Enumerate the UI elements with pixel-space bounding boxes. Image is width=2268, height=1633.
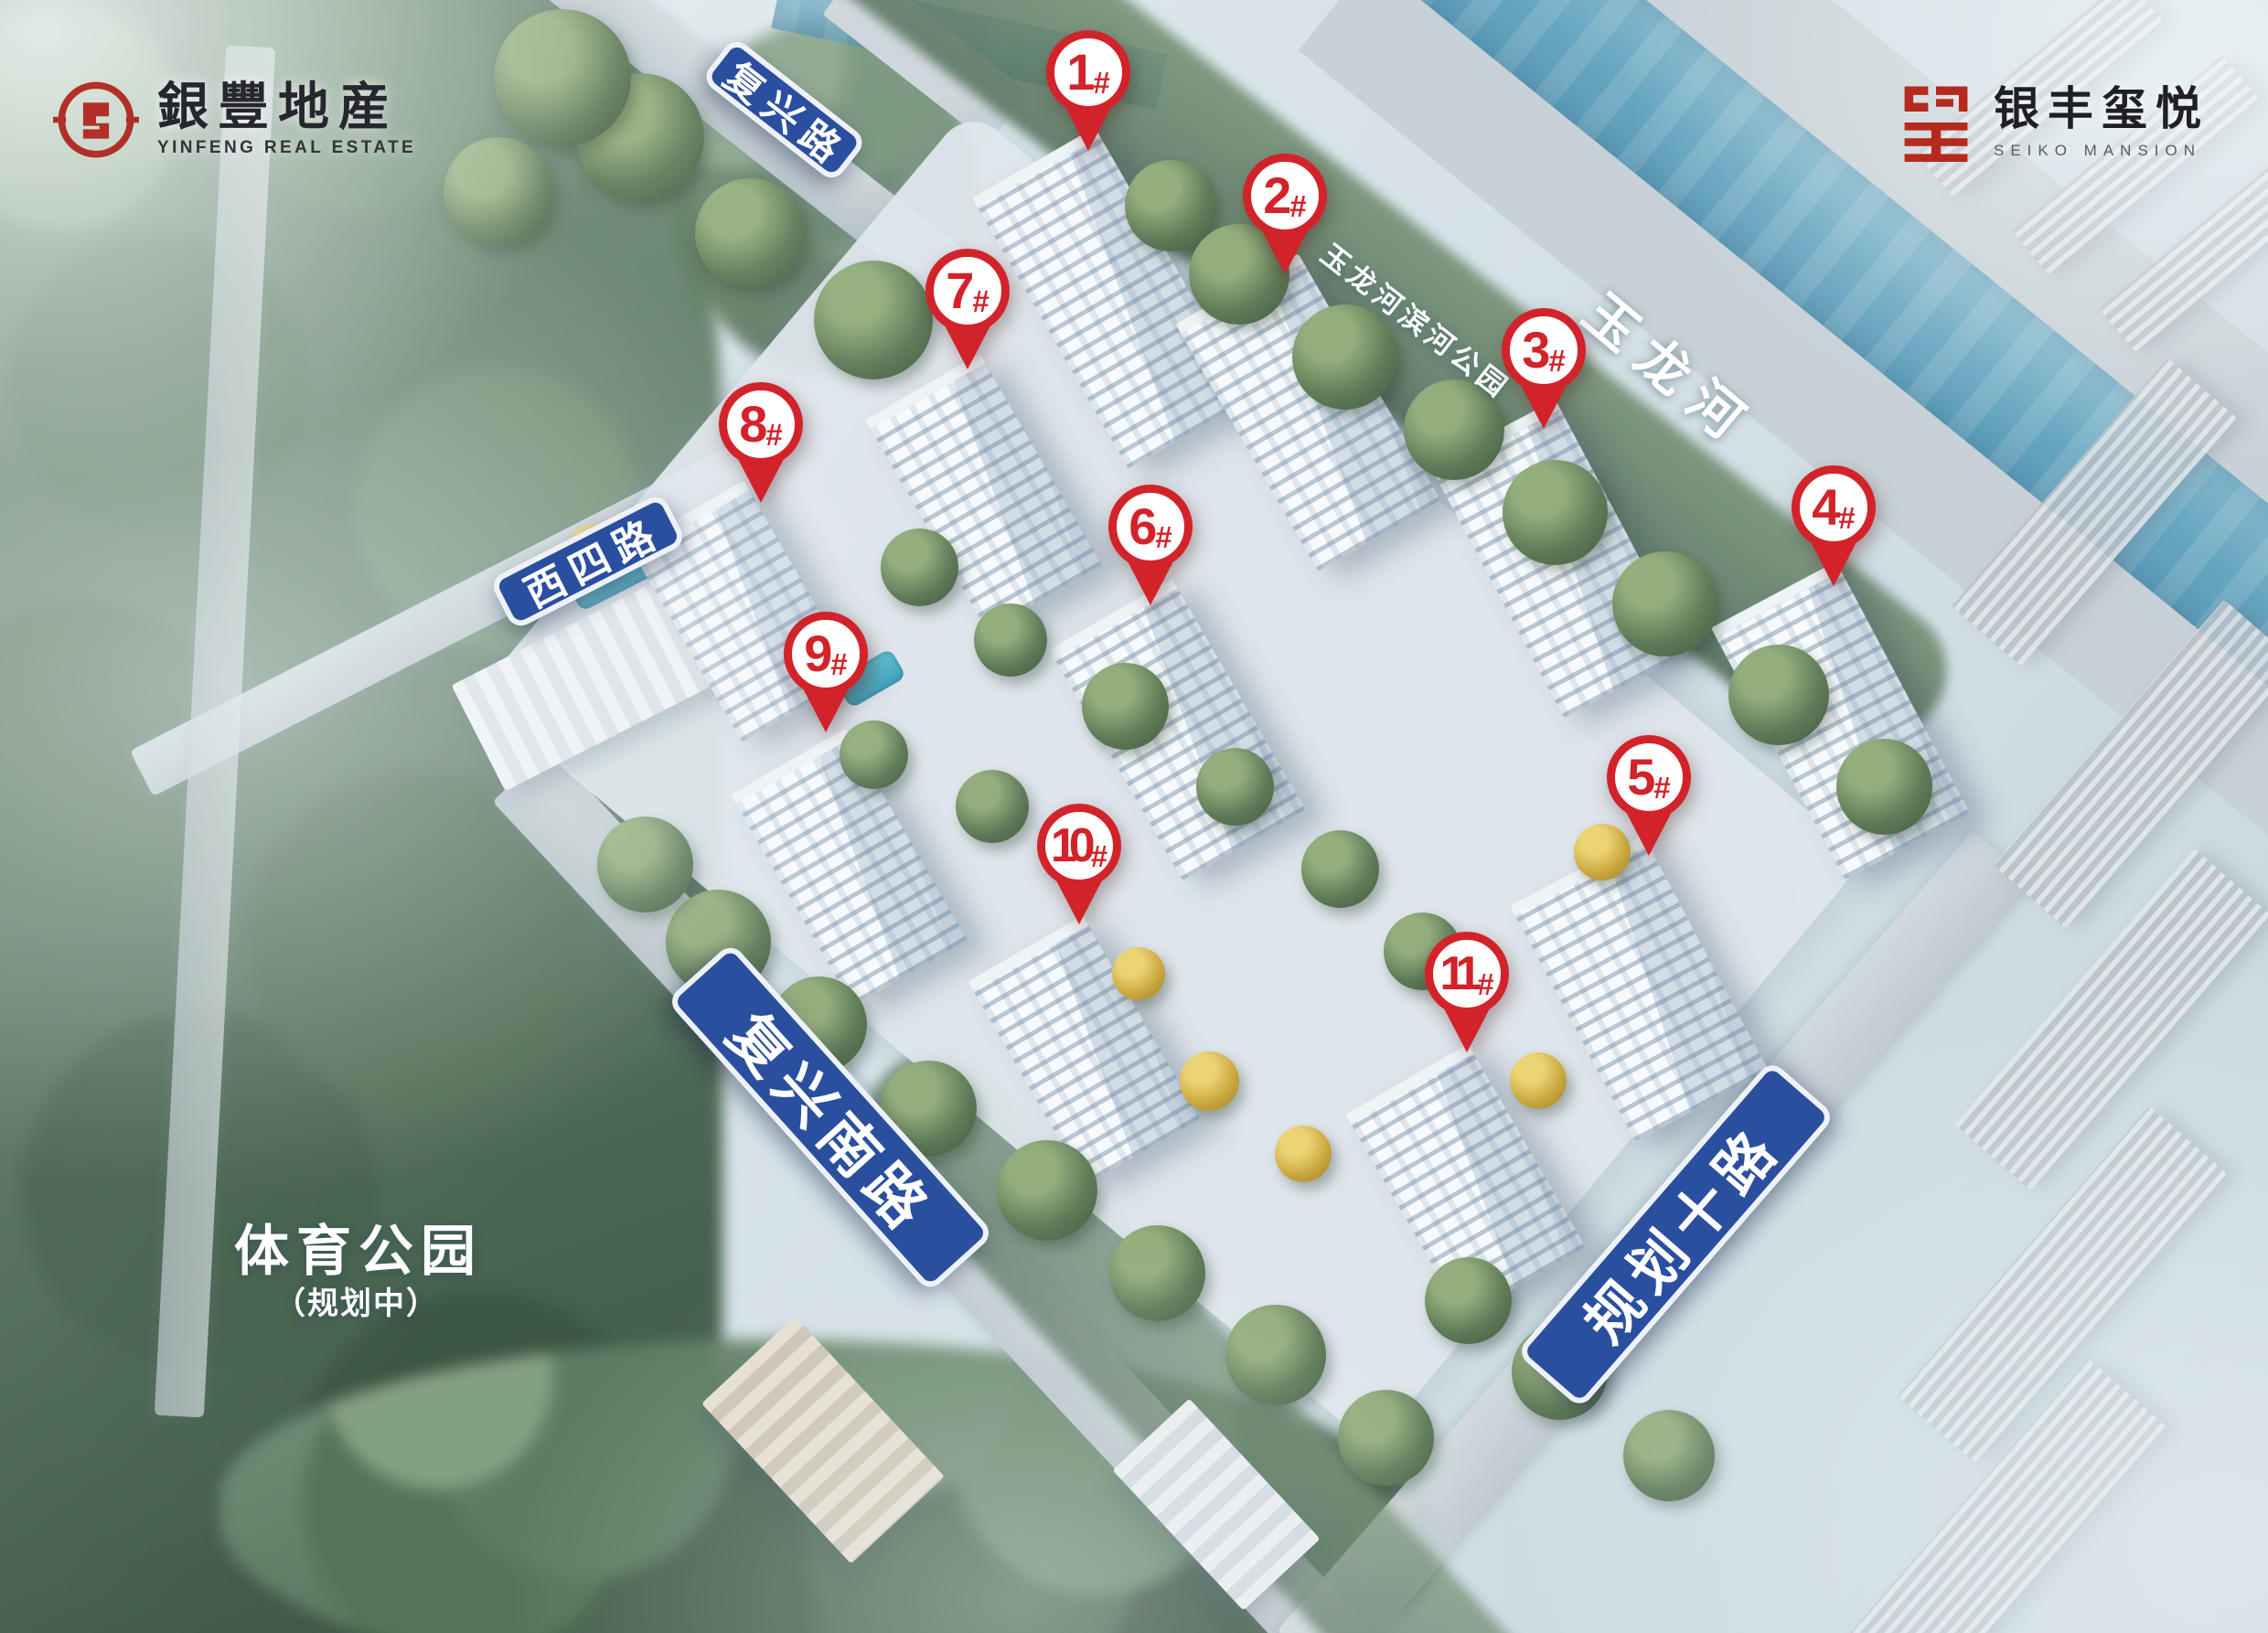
tree xyxy=(1112,947,1165,1000)
tree xyxy=(1836,739,1932,835)
marker-number: 5 xyxy=(1627,752,1653,803)
marker-number: 8 xyxy=(739,399,765,450)
tree xyxy=(814,261,933,379)
building-marker-1: 1# xyxy=(1046,30,1130,151)
scenery-layer xyxy=(0,0,2268,1633)
marker-bubble: 10# xyxy=(1037,804,1121,888)
developer-name-en: YINFENG REAL ESTATE xyxy=(157,138,416,158)
tree xyxy=(1275,1126,1332,1182)
marker-bubble: 6# xyxy=(1108,485,1193,569)
marker-hash: # xyxy=(1289,191,1306,221)
tree xyxy=(997,1140,1097,1241)
tree xyxy=(1109,1225,1205,1321)
tree xyxy=(494,9,631,146)
building-marker-6: 6# xyxy=(1108,485,1193,605)
project-name-cn: 银丰玺悦 xyxy=(1994,85,2209,133)
building-marker-10: 10# xyxy=(1037,804,1121,924)
tree xyxy=(956,770,1029,843)
tree xyxy=(695,178,805,288)
marker-hash: # xyxy=(1838,503,1855,533)
project-logo: 银丰玺悦 SEIKO MANSION xyxy=(1897,77,2209,168)
marker-hash: # xyxy=(1091,841,1107,871)
marker-hash: # xyxy=(765,420,782,450)
building-marker-5: 5# xyxy=(1607,735,1691,856)
project-name-en: SEIKO MANSION xyxy=(1994,142,2209,160)
marker-hash: # xyxy=(1653,773,1670,803)
marker-bubble: 11# xyxy=(1425,932,1509,1016)
marker-number: 3 xyxy=(1522,325,1548,376)
building-marker-2: 2# xyxy=(1243,154,1327,274)
tree xyxy=(974,603,1047,677)
tree xyxy=(1425,1257,1512,1344)
marker-bubble: 3# xyxy=(1502,308,1586,392)
building-marker-11: 11# xyxy=(1425,932,1509,1052)
marker-hash: # xyxy=(1477,969,1493,999)
marker-bubble: 5# xyxy=(1607,735,1691,819)
marker-number: 1 xyxy=(1066,47,1093,98)
marker-bubble: 7# xyxy=(925,249,1010,333)
tree xyxy=(1292,304,1397,410)
marker-number: 10 xyxy=(1051,822,1087,870)
building-marker-9: 9# xyxy=(784,612,868,732)
tree xyxy=(1225,1305,1326,1405)
marker-bubble: 4# xyxy=(1792,465,1876,550)
marker-number: 11 xyxy=(1439,950,1473,998)
marker-bubble: 2# xyxy=(1243,154,1327,238)
marker-hash: # xyxy=(1155,522,1171,552)
marker-hash: # xyxy=(972,286,989,316)
tree xyxy=(881,528,958,606)
building-marker-4: 4# xyxy=(1792,465,1876,586)
marker-number: 4 xyxy=(1812,482,1838,533)
tree xyxy=(1338,1390,1434,1486)
building-marker-7: 7# xyxy=(925,249,1010,369)
tree xyxy=(1503,460,1608,565)
tree xyxy=(1623,1410,1715,1501)
developer-name-cn: 銀豐地産 xyxy=(157,81,416,135)
marker-number: 2 xyxy=(1263,170,1289,221)
tree xyxy=(1125,160,1216,251)
marker-hash: # xyxy=(1548,346,1565,376)
marker-bubble: 1# xyxy=(1046,30,1130,114)
tree xyxy=(1180,1051,1239,1111)
developer-logo: 銀豐地産 YINFENG REAL ESTATE xyxy=(53,77,416,163)
sports-park-status-label: （规划中） xyxy=(274,1278,439,1323)
sports-park-label: 体育公园 xyxy=(234,1207,483,1286)
building-marker-3: 3# xyxy=(1502,308,1586,429)
tree xyxy=(1082,663,1169,750)
building-marker-8: 8# xyxy=(719,382,803,503)
tree xyxy=(444,137,553,247)
tree xyxy=(597,816,693,913)
project-logo-icon xyxy=(1897,77,1975,168)
tree xyxy=(1728,645,1829,745)
tree xyxy=(1612,551,1717,656)
marker-hash: # xyxy=(1093,68,1109,98)
marker-number: 6 xyxy=(1129,501,1155,552)
marker-bubble: 8# xyxy=(719,382,803,466)
developer-seal-icon xyxy=(53,77,139,163)
marker-hash: # xyxy=(830,649,847,679)
tree xyxy=(1196,748,1274,826)
marker-number: 9 xyxy=(804,628,830,679)
masterplan-rendering: 玉龙河 玉龙河滨河公园 体育公园 （规划中） 复兴路西四路复兴南路规划十路 1#… xyxy=(0,0,2268,1633)
tree xyxy=(1510,1052,1567,1109)
marker-bubble: 9# xyxy=(784,612,868,696)
marker-number: 7 xyxy=(946,265,972,316)
tree xyxy=(1301,830,1379,908)
